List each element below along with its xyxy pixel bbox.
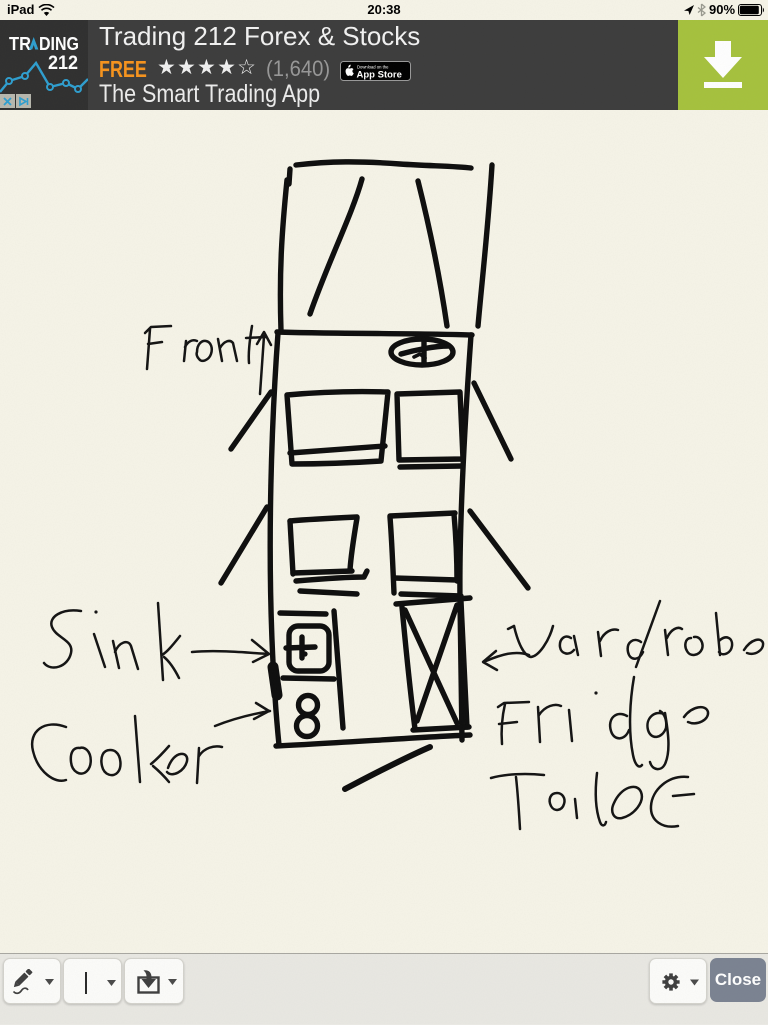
svg-text:212: 212 — [48, 53, 78, 74]
svg-text:TR: TR — [9, 34, 31, 54]
svg-text:DING: DING — [39, 34, 79, 54]
svg-text:App Store: App Store — [357, 70, 402, 81]
